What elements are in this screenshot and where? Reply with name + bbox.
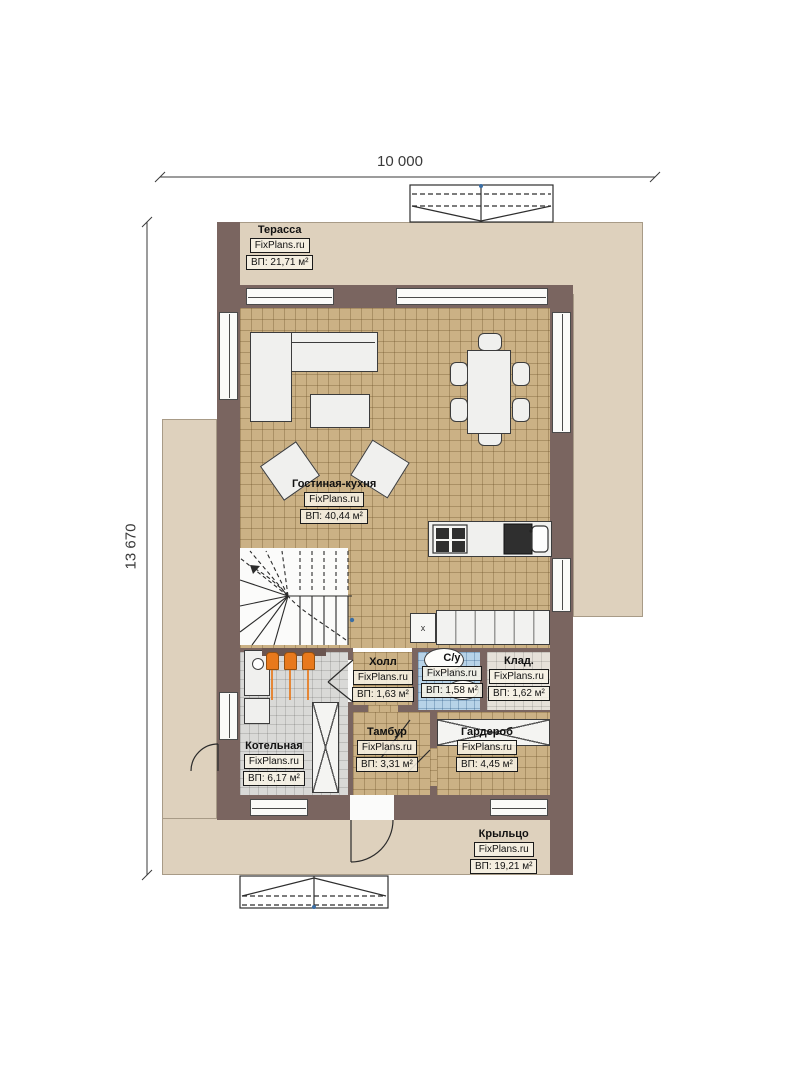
coffee-table bbox=[310, 394, 370, 428]
room-brand: FixPlans.ru bbox=[422, 666, 482, 681]
dining-chair bbox=[512, 362, 530, 386]
room-area: ВП: 1,58 м² bbox=[421, 683, 483, 698]
room-area: ВП: 40,44 м² bbox=[300, 509, 367, 524]
room-label-storage: Клад. FixPlans.ru ВП: 1,62 м² bbox=[488, 655, 550, 701]
boiler-unit bbox=[284, 652, 297, 670]
room-label-terrace: Терасса FixPlans.ru ВП: 21,71 м² bbox=[246, 224, 313, 270]
stairs-floor bbox=[240, 548, 348, 645]
boiler-unit bbox=[302, 652, 315, 670]
room-name: Клад. bbox=[504, 655, 534, 667]
room-label-wc: С/у FixPlans.ru ВП: 1,58 м² bbox=[421, 652, 483, 698]
room-area: ВП: 21,71 м² bbox=[246, 255, 313, 270]
room-brand: FixPlans.ru bbox=[304, 492, 364, 507]
window-left-living bbox=[219, 312, 238, 400]
room-name: С/у bbox=[443, 652, 460, 664]
window-right-kitchen bbox=[552, 558, 571, 612]
room-brand: FixPlans.ru bbox=[474, 842, 534, 857]
boiler-cabinet-low bbox=[244, 698, 270, 724]
dimension-top-label: 10 000 bbox=[355, 153, 445, 170]
room-brand: FixPlans.ru bbox=[457, 740, 517, 755]
boiler-unit bbox=[266, 652, 279, 670]
room-brand: FixPlans.ru bbox=[244, 754, 304, 769]
room-area: ВП: 1,63 м² bbox=[352, 687, 414, 702]
window-left-boiler bbox=[219, 692, 238, 740]
room-name: Терасса bbox=[258, 224, 302, 236]
dining-chair bbox=[478, 333, 502, 351]
room-area: ВП: 4,45 м² bbox=[456, 757, 518, 772]
canopy-symbol-bottom bbox=[240, 876, 388, 909]
dining-chair bbox=[450, 398, 468, 422]
window-right-dining bbox=[552, 312, 571, 433]
entry-door-opening bbox=[350, 795, 394, 820]
floor-plan: x bbox=[0, 0, 792, 1080]
window-bottom-wardrobe bbox=[490, 799, 548, 816]
room-area: ВП: 19,21 м² bbox=[470, 859, 537, 874]
room-brand: FixPlans.ru bbox=[250, 238, 310, 253]
room-name: Котельная bbox=[245, 740, 303, 752]
dining-chair bbox=[450, 362, 468, 386]
dimension-top-line bbox=[155, 172, 660, 182]
room-name: Крыльцо bbox=[479, 828, 529, 840]
terrace-area-right bbox=[573, 294, 643, 617]
canopy-symbol-top bbox=[410, 184, 553, 222]
side-deck-left bbox=[162, 419, 217, 875]
room-label-living: Гостиная-кухня FixPlans.ru ВП: 40,44 м² bbox=[292, 478, 376, 524]
door-gap-hall-tambur bbox=[368, 705, 398, 712]
kitchen-counter bbox=[428, 521, 552, 557]
window-top-living bbox=[246, 288, 334, 305]
room-brand: FixPlans.ru bbox=[357, 740, 417, 755]
window-bottom-boiler bbox=[250, 799, 308, 816]
washer-box: x bbox=[410, 613, 436, 643]
room-name: Холл bbox=[369, 656, 397, 668]
dining-chair bbox=[512, 398, 530, 422]
heater-dial bbox=[252, 658, 264, 670]
room-area: ВП: 3,31 м² bbox=[356, 757, 418, 772]
dining-table bbox=[467, 350, 511, 434]
room-label-wardrobe: Гардероб FixPlans.ru ВП: 4,45 м² bbox=[456, 726, 518, 772]
room-brand: FixPlans.ru bbox=[489, 669, 549, 684]
room-area: ВП: 6,17 м² bbox=[243, 771, 305, 786]
room-label-vestibule: Тамбур FixPlans.ru ВП: 3,31 м² bbox=[356, 726, 418, 772]
washer-marker: x bbox=[421, 623, 426, 633]
room-label-porch: Крыльцо FixPlans.ru ВП: 19,21 м² bbox=[470, 828, 537, 874]
door-gap-wardrobe bbox=[430, 748, 437, 786]
dimension-left-line bbox=[142, 217, 152, 880]
glass-door-top bbox=[396, 288, 548, 305]
boiler-tall-cabinet bbox=[312, 702, 339, 793]
room-label-boiler: Котельная FixPlans.ru ВП: 6,17 м² bbox=[243, 740, 305, 786]
room-name: Гардероб bbox=[461, 726, 513, 738]
room-brand: FixPlans.ru bbox=[353, 670, 413, 685]
cabinet-row bbox=[436, 610, 550, 645]
room-name: Тамбур bbox=[367, 726, 407, 738]
sofa-chaise bbox=[250, 332, 292, 422]
dimension-left-label: 13 670 bbox=[123, 502, 140, 592]
room-label-hall: Холл FixPlans.ru ВП: 1,63 м² bbox=[352, 656, 414, 702]
room-name: Гостиная-кухня bbox=[292, 478, 376, 490]
room-area: ВП: 1,62 м² bbox=[488, 686, 550, 701]
